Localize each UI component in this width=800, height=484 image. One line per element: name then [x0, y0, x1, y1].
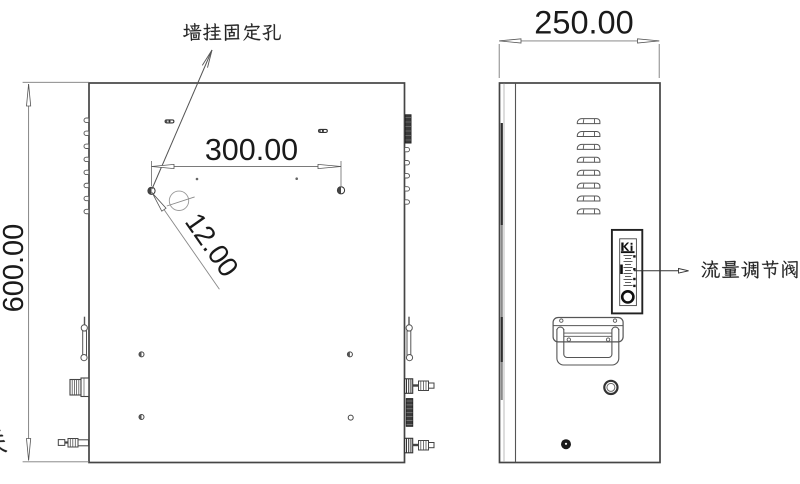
svg-text:300.00: 300.00: [205, 133, 298, 167]
svg-text:250.00: 250.00: [534, 5, 633, 41]
svg-text:600.00: 600.00: [0, 224, 30, 313]
